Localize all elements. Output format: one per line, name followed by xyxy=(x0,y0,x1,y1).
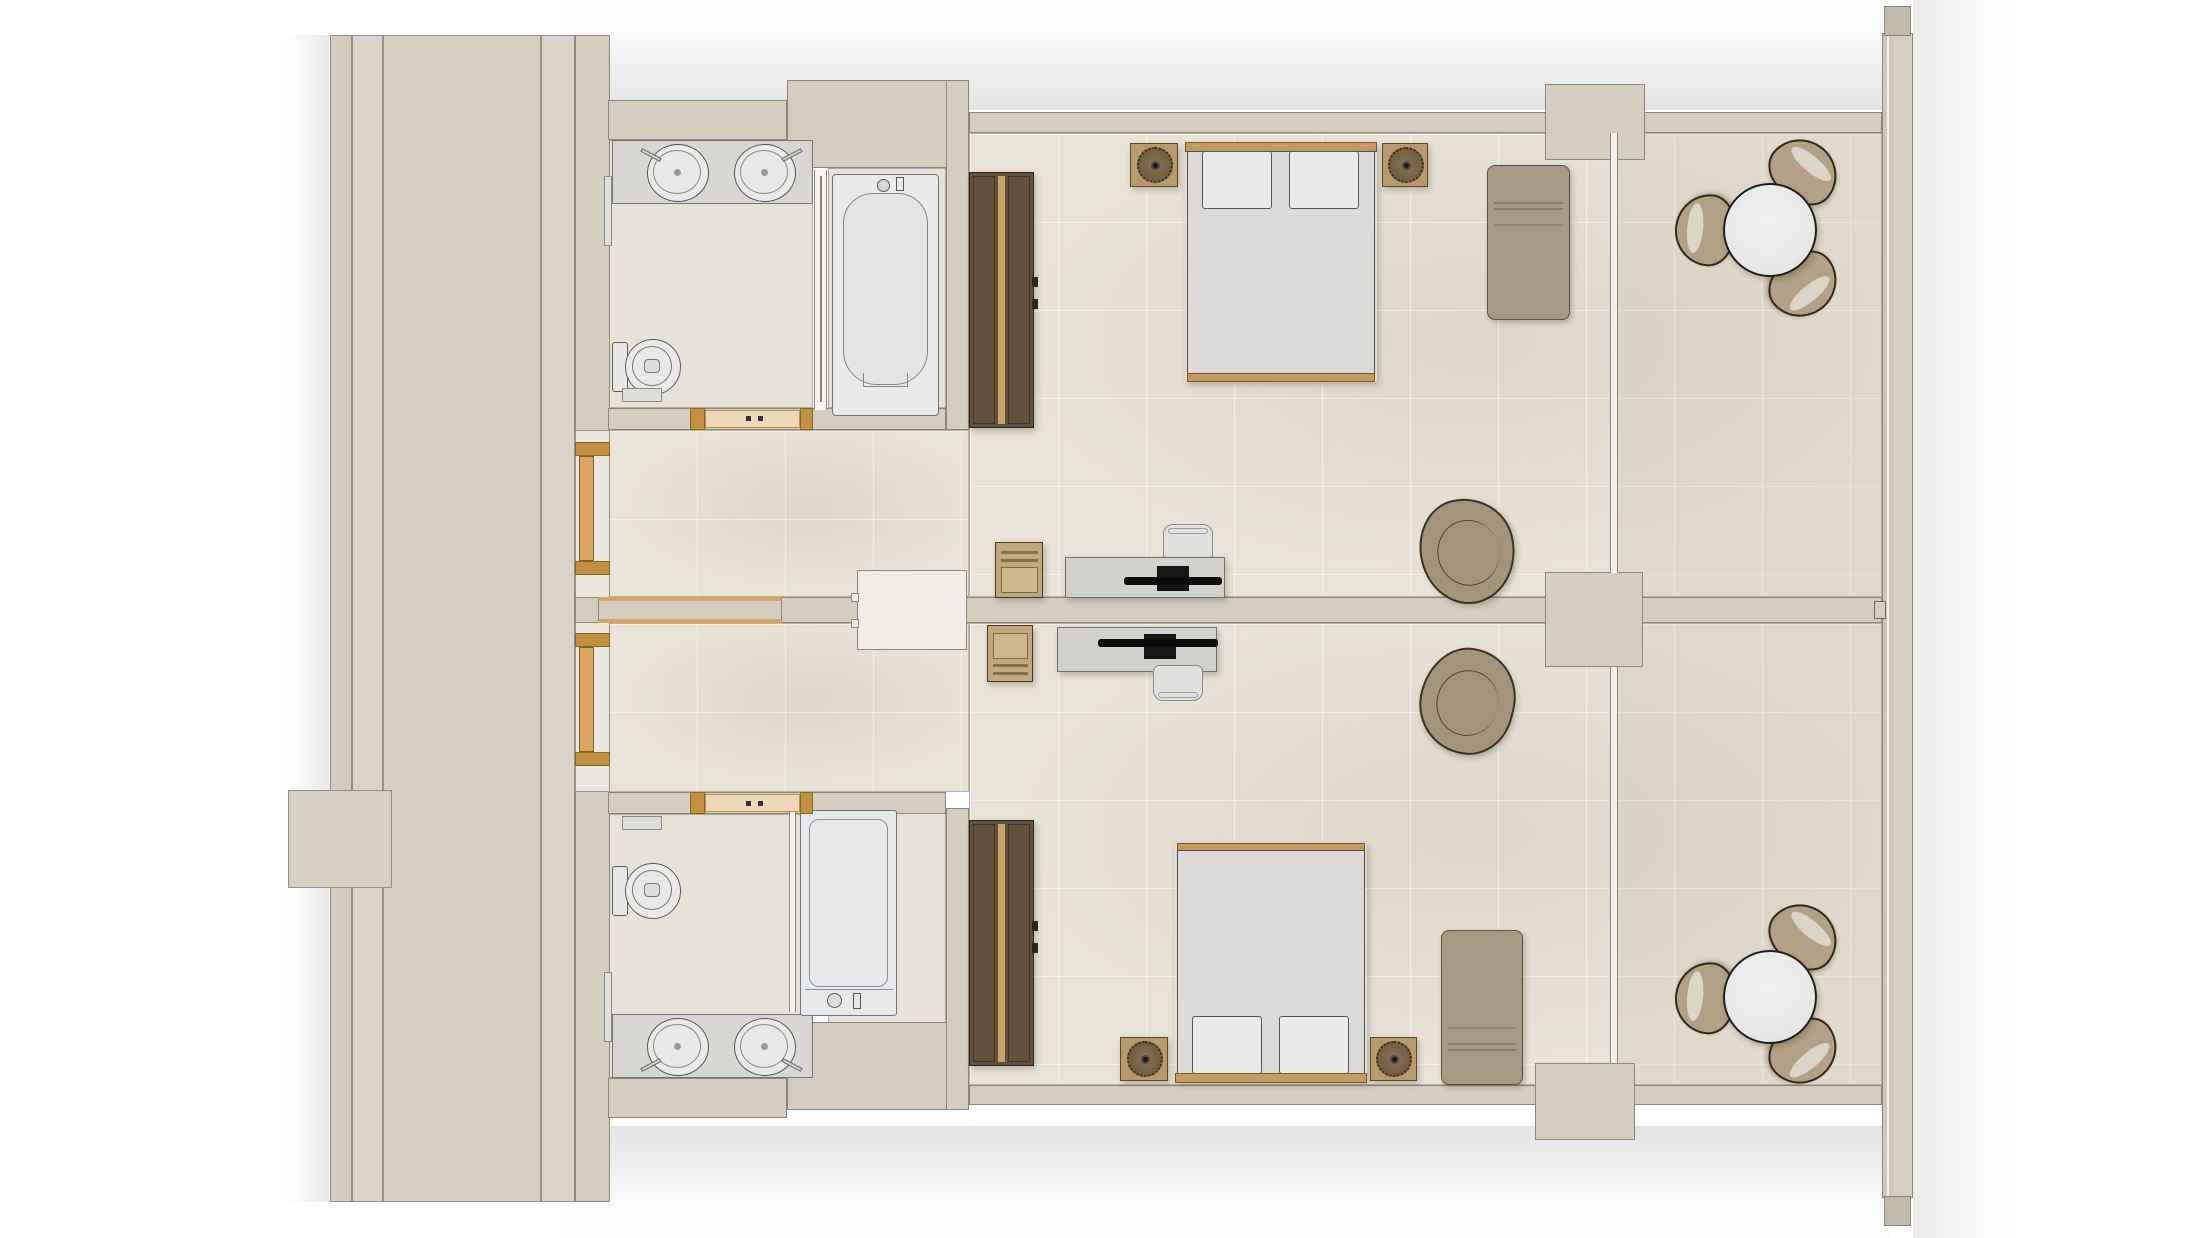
bench-roll-line-2 xyxy=(1494,208,1563,210)
wardrobe-panel-line-2 xyxy=(1008,824,1030,1062)
room1-tub-glass-screen xyxy=(814,170,827,410)
toilet-flush xyxy=(644,359,660,373)
luggage-slat-1 xyxy=(993,672,1028,675)
luggage-inner xyxy=(1001,567,1038,593)
wardrobe-panel-line xyxy=(973,176,995,424)
connecting-door-tab-2 xyxy=(851,619,859,628)
bathtub-faucet xyxy=(877,179,890,192)
floor-plan-canvas xyxy=(0,0,2200,1238)
bed-pillow-left xyxy=(1192,1016,1262,1074)
sink-drain xyxy=(761,169,768,176)
room2-bench xyxy=(1441,930,1523,1085)
bed-pillow-right xyxy=(1279,1016,1349,1074)
room2-bath-south-wall xyxy=(608,1078,787,1118)
door-stop-dot-3 xyxy=(746,801,751,806)
room2-luggage-rack xyxy=(987,625,1033,682)
door-stop-dot-2 xyxy=(758,416,763,421)
shower-head xyxy=(853,993,861,1009)
sink-faucet xyxy=(640,148,661,162)
shower-mixer xyxy=(827,993,842,1008)
room1-bathtub xyxy=(832,174,939,416)
bed-headboard xyxy=(1175,1073,1367,1083)
divider-orange-lined-segment xyxy=(598,597,782,623)
tv-screen xyxy=(1124,577,1222,585)
luggage-slat-1 xyxy=(1001,551,1038,554)
room1-tub-north-wall xyxy=(787,80,969,168)
room1-round-table xyxy=(1723,183,1817,277)
wardrobe-stripe xyxy=(998,176,1005,424)
bed-pillow-left xyxy=(1202,151,1272,209)
wardrobe-stripe xyxy=(998,824,1005,1062)
room1-mirror-strip xyxy=(604,176,612,246)
room1-bed xyxy=(1185,142,1377,382)
room2-sink-right xyxy=(734,1018,796,1076)
corridor-wall-band-1 xyxy=(330,35,352,1202)
glass-partition-room2 xyxy=(1610,667,1618,1085)
room2-bath-east-wall xyxy=(946,808,969,1110)
toilet-bowl xyxy=(625,339,681,395)
room1-vanity-counter xyxy=(612,140,813,204)
table-lamp xyxy=(1376,1041,1412,1077)
room1-bath-shelf xyxy=(622,388,662,402)
room1-north-pier xyxy=(1545,84,1645,160)
wardrobe-handle-2 xyxy=(1032,299,1038,309)
wardrobe-panel-line-2 xyxy=(1008,176,1030,424)
room1-bath-east-wall xyxy=(946,80,969,430)
exterior-shade-top xyxy=(560,0,1890,110)
entry-door-frame-2 xyxy=(575,561,610,575)
wardrobe-handle-2 xyxy=(1032,943,1038,953)
room2-bed xyxy=(1175,843,1367,1083)
window-wall-east xyxy=(1882,33,1913,1198)
room1-bath-door-threshold xyxy=(705,410,800,428)
window-mullion-at-divider xyxy=(1874,601,1886,619)
room1-desk xyxy=(1065,557,1225,598)
sink-drain xyxy=(674,169,681,176)
connecting-door-tab-1 xyxy=(851,593,859,602)
glass-partition-room1 xyxy=(1610,133,1618,573)
room2-mirror-strip xyxy=(604,972,612,1042)
sink-drain xyxy=(761,1043,768,1050)
bed-pillow-right xyxy=(1289,151,1359,209)
bathtub-basin xyxy=(843,193,928,385)
corridor-wall-band-4 xyxy=(541,35,575,1202)
room2-bedroom-south-wall xyxy=(969,1085,1882,1105)
room1-bath-door-frame-r xyxy=(800,408,813,430)
room2-vanity-counter xyxy=(612,1014,813,1078)
exterior-shade-right xyxy=(1913,0,2093,1238)
shower-bench-line xyxy=(805,989,893,990)
luggage-slat-2 xyxy=(1001,559,1038,562)
room2-nightstand-right xyxy=(1370,1037,1417,1081)
lamp-center xyxy=(1141,1055,1150,1064)
entry-door-leaf-room2 xyxy=(579,647,594,752)
luggage-inner xyxy=(993,633,1028,659)
bench-roll-line-3 xyxy=(1448,1027,1516,1029)
divider-center-pier xyxy=(1545,572,1643,667)
room1-bench xyxy=(1487,165,1570,320)
table-lamp xyxy=(1127,1041,1163,1077)
sink-faucet xyxy=(781,148,802,162)
wardrobe-handle-1 xyxy=(1032,277,1038,287)
wardrobe-handle-1 xyxy=(1032,921,1038,931)
shower-inner xyxy=(809,819,888,987)
room1-luggage-rack xyxy=(995,542,1043,598)
chair-back-line xyxy=(1168,528,1208,534)
lounge-seat-arc xyxy=(1430,513,1506,592)
room2-toilet xyxy=(612,862,682,920)
room2-shower xyxy=(800,810,897,1016)
corridor-wall-band-3 xyxy=(383,35,541,1202)
room1-desk-chair xyxy=(1163,524,1213,560)
bathtub-foot xyxy=(863,373,908,387)
glass-line xyxy=(820,176,822,402)
tv-screen xyxy=(1098,639,1218,647)
chair-cushion-gap xyxy=(1685,203,1705,254)
bench-roll-line-1 xyxy=(1494,202,1563,204)
chair-cushion-gap xyxy=(1685,971,1705,1022)
lounge-seat-arc xyxy=(1429,664,1505,743)
table-lamp xyxy=(1137,147,1173,183)
exterior-shade-bottom xyxy=(560,1126,1890,1238)
bench-roll-line-3 xyxy=(1494,224,1563,226)
sink-faucet xyxy=(781,1058,802,1072)
room1-sink-right xyxy=(734,144,796,202)
room2-bath-shelf xyxy=(622,816,662,830)
lamp-center xyxy=(1151,161,1160,170)
sink-drain xyxy=(674,1043,681,1050)
window-wall-cap-top xyxy=(1884,6,1911,36)
bench-roll-line-2 xyxy=(1448,1049,1516,1051)
corridor-wall-band-2 xyxy=(352,35,383,1202)
room2-nightstand-left xyxy=(1120,1037,1168,1081)
room1-bedroom-north-wall xyxy=(969,112,1882,133)
wardrobe-panel-line xyxy=(973,824,995,1062)
room2-bath-door-threshold xyxy=(705,794,800,812)
room2-bath-door-frame-l xyxy=(690,792,705,814)
bathtub-spout xyxy=(896,177,904,191)
room1-nightstand-right xyxy=(1382,143,1428,187)
room2-wardrobe xyxy=(969,820,1034,1066)
room2-south-pier xyxy=(1535,1063,1635,1140)
connecting-door-block xyxy=(857,570,967,650)
entry-door-frame-3 xyxy=(575,633,610,647)
room2-shower-glass-door xyxy=(789,812,796,1012)
room1-wardrobe xyxy=(969,172,1034,428)
entry-door-frame-1 xyxy=(575,442,610,456)
room2-shower-south-wall xyxy=(787,1022,969,1110)
room2-sink-left xyxy=(647,1018,709,1076)
bed-footboard xyxy=(1187,373,1375,382)
table-lamp xyxy=(1388,147,1424,183)
room1-nightstand-left xyxy=(1130,143,1178,187)
door-stop-dot-4 xyxy=(758,801,763,806)
room1-sink-left xyxy=(647,144,709,202)
room1-bath-north-wall xyxy=(608,100,787,140)
room2-desk-chair xyxy=(1153,665,1203,701)
corridor-service-box xyxy=(288,790,392,888)
window-wall-cap-bottom xyxy=(1884,1196,1911,1226)
lamp-center xyxy=(1402,161,1411,170)
toilet-bowl xyxy=(625,863,681,919)
room2-bath-door-frame-r xyxy=(800,792,813,814)
lamp-center xyxy=(1390,1055,1399,1064)
chair-back-line xyxy=(1158,692,1198,698)
door-stop-dot-1 xyxy=(746,416,751,421)
entry-door-frame-4 xyxy=(575,752,610,766)
room1-bath-door-frame-l xyxy=(690,408,705,430)
bench-roll-line-1 xyxy=(1448,1043,1516,1045)
luggage-slat-2 xyxy=(993,664,1028,667)
entry-door-leaf-room1 xyxy=(579,456,594,561)
room2-round-table xyxy=(1723,950,1817,1044)
exterior-shade-left xyxy=(272,35,330,1202)
toilet-flush xyxy=(644,883,660,897)
sink-faucet xyxy=(640,1058,661,1072)
